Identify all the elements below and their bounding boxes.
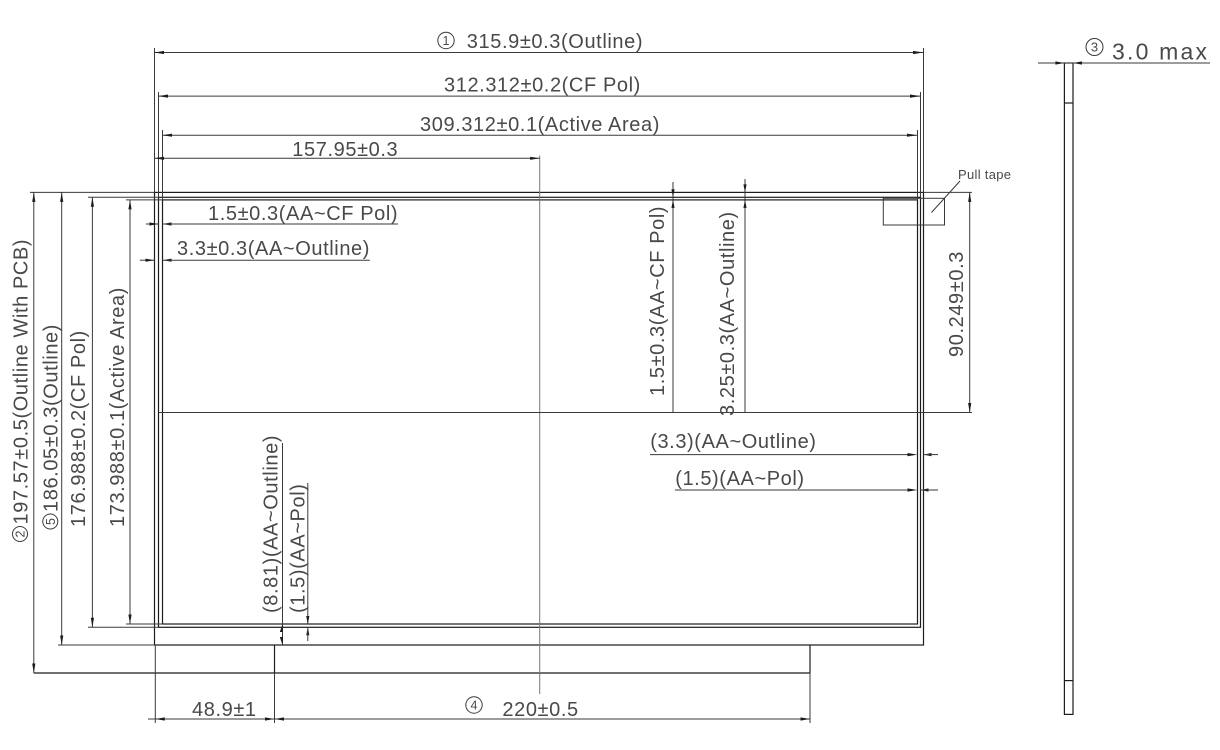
svg-text:5: 5 — [44, 518, 58, 525]
svg-text:(1.5)(AA~Pol): (1.5)(AA~Pol) — [288, 483, 310, 613]
svg-text:1.5±0.3(AA~CF Pol): 1.5±0.3(AA~CF Pol) — [208, 203, 398, 225]
svg-text:197.57±0.5(Outline With PCB): 197.57±0.5(Outline With PCB) — [11, 239, 33, 525]
svg-text:3: 3 — [1091, 40, 1098, 55]
svg-text:186.05±0.3(Outline): 186.05±0.3(Outline) — [41, 324, 63, 512]
svg-text:3.0 max: 3.0 max — [1112, 39, 1209, 65]
svg-text:1.5±0.3(AA~CF Pol): 1.5±0.3(AA~CF Pol) — [647, 206, 669, 396]
svg-text:4: 4 — [471, 699, 478, 713]
svg-text:1: 1 — [443, 34, 450, 48]
svg-text:309.312±0.1(Active Area): 309.312±0.1(Active Area) — [420, 114, 660, 136]
svg-text:(3.3)(AA~Outline): (3.3)(AA~Outline) — [650, 431, 816, 453]
svg-text:48.9±1: 48.9±1 — [192, 699, 257, 721]
svg-text:90.249±0.3: 90.249±0.3 — [946, 251, 968, 357]
svg-text:(1.5)(AA~Pol): (1.5)(AA~Pol) — [675, 468, 805, 490]
svg-text:220±0.5: 220±0.5 — [502, 699, 578, 721]
svg-text:312.312±0.2(CF Pol): 312.312±0.2(CF Pol) — [444, 75, 641, 97]
svg-text:3.25±0.3(AA~Outline): 3.25±0.3(AA~Outline) — [717, 211, 739, 416]
svg-text:2: 2 — [14, 530, 28, 537]
svg-text:315.9±0.3(Outline): 315.9±0.3(Outline) — [467, 31, 643, 53]
svg-text:176.988±0.2(CF Pol): 176.988±0.2(CF Pol) — [68, 330, 90, 527]
svg-text:173.988±0.1(Active Area): 173.988±0.1(Active Area) — [107, 287, 129, 527]
svg-text:Pull tape: Pull tape — [958, 167, 1011, 182]
svg-text:157.95±0.3: 157.95±0.3 — [292, 139, 398, 161]
svg-text:3.3±0.3(AA~Outline): 3.3±0.3(AA~Outline) — [177, 238, 370, 260]
svg-text:(8.81)(AA~Outline): (8.81)(AA~Outline) — [261, 435, 283, 613]
